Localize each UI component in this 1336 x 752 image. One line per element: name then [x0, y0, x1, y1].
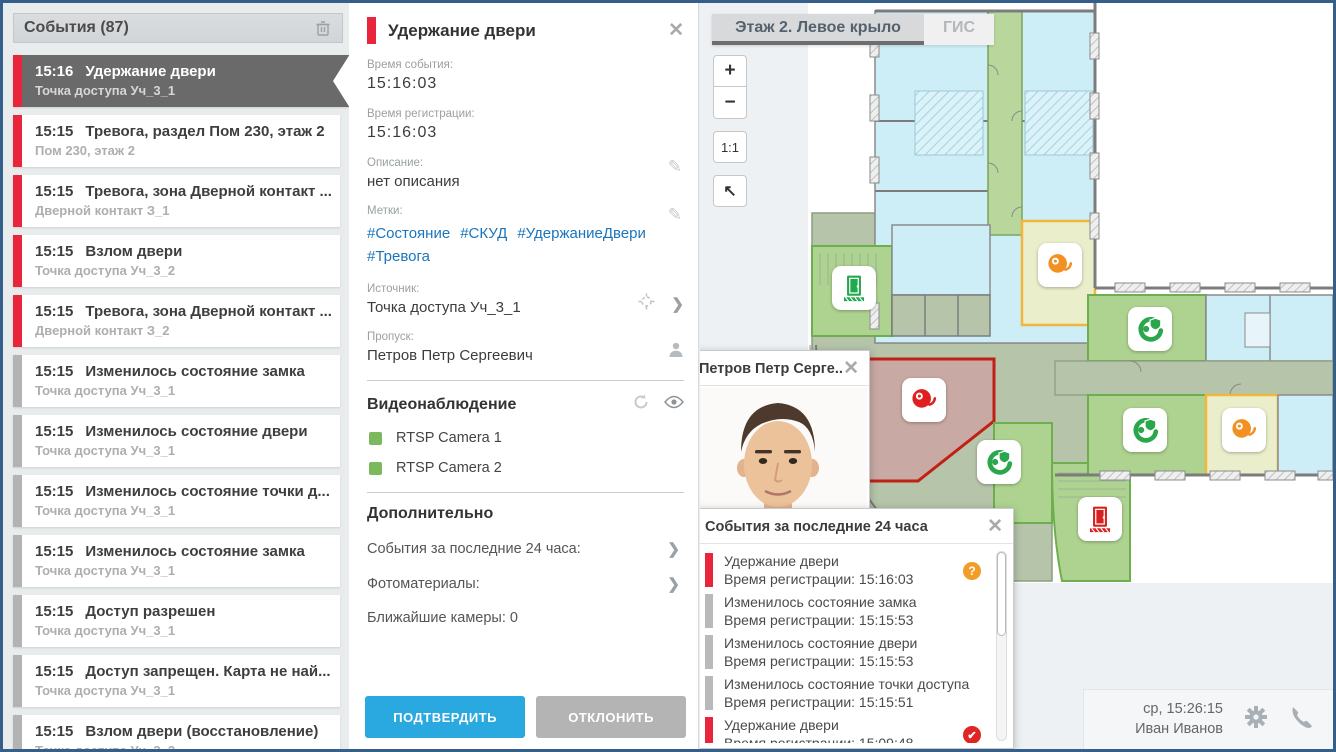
- event-title: 15:15Тревога, раздел Пом 230, этаж 2: [35, 123, 325, 140]
- reg-time-field: Время регистрации: 15:16:03: [367, 108, 684, 142]
- severity-bar: [705, 676, 713, 710]
- pass-field: Пропуск: Петров Петр Сергеевич: [367, 331, 684, 364]
- status-badge: [963, 726, 981, 743]
- tag-link[interactable]: #СКУД: [460, 223, 507, 245]
- recent-event-reg-time: Время регистрации: 15:15:51: [724, 694, 969, 710]
- recent-event-item[interactable]: Удержание двери Время регистрации: 15:09…: [705, 717, 983, 743]
- event-time: 15:15: [35, 603, 73, 620]
- extra-section-header: Дополнительно: [367, 505, 684, 523]
- event-time: 15:15: [35, 543, 73, 560]
- severity-bar: [367, 17, 376, 44]
- event-subtitle: Дверной контакт З_2: [35, 323, 332, 338]
- status-bar: ср, 15:26:15 Иван Иванов: [1083, 689, 1333, 749]
- recent-events-list: Удержание двери Время регистрации: 15:16…: [700, 544, 1013, 743]
- recent-event-item[interactable]: Изменилось состояние замка Время регистр…: [705, 594, 983, 628]
- chevron-right-icon: ❯: [667, 540, 680, 558]
- phone-icon[interactable]: [1289, 704, 1315, 735]
- event-list-item[interactable]: 15:16Удержание двери Точка доступа Уч_3_…: [13, 55, 349, 107]
- refresh-icon[interactable]: [632, 393, 650, 416]
- camera-list: RTSP Camera 1 RTSP Camera 2: [367, 430, 684, 476]
- recent-event-reg-time: Время регистрации: 15:15:53: [724, 653, 917, 669]
- alarm-bell-icon[interactable]: [1222, 408, 1266, 452]
- tab-floor-2-left-wing[interactable]: Этаж 2. Левое крыло: [712, 14, 924, 45]
- event-title: 15:15Доступ запрещен. Карта не най...: [35, 663, 331, 680]
- event-title: 15:15Взлом двери (восстановление): [35, 723, 318, 740]
- severity-bar: [705, 553, 713, 587]
- source-value: Точка доступа Уч_3_1: [367, 299, 684, 316]
- severity-bar: [13, 535, 22, 587]
- zoom-reset-button[interactable]: 1:1: [713, 131, 747, 163]
- recent-popup-title: События за последние 24 часа: [705, 519, 928, 535]
- event-list: 15:16Удержание двери Точка доступа Уч_3_…: [3, 51, 349, 749]
- event-subtitle: Точка доступа Уч_3_1: [35, 563, 305, 578]
- recent-event-title: Удержание двери: [724, 553, 913, 569]
- event-time: 15:16: [35, 63, 73, 80]
- events-panel-header: События (87): [13, 13, 343, 43]
- event-time: 15:15: [35, 243, 73, 260]
- event-list-item[interactable]: 15:15Тревога, зона Дверной контакт ... Д…: [13, 295, 340, 347]
- event-title: 15:15Изменилось состояние замка: [35, 363, 305, 380]
- extra-rows: События за последние 24 часа: ❯ Фотомате…: [367, 540, 684, 626]
- event-time: 15:15: [35, 723, 73, 740]
- tag-link[interactable]: #Состояние: [367, 223, 450, 245]
- pan-home-button[interactable]: ↖: [713, 175, 747, 207]
- detail-title: Удержание двери: [388, 21, 536, 41]
- access-point-icon[interactable]: [1128, 307, 1172, 351]
- app-window: События (87) 15:16Удержание двери Точка …: [0, 0, 1336, 752]
- event-subtitle: Точка доступа Уч_3_1: [35, 503, 330, 518]
- person-icon[interactable]: [668, 341, 684, 363]
- event-subtitle: Точка доступа Уч_3_1: [35, 683, 331, 698]
- recent-event-item[interactable]: Изменилось состояние двери Время регистр…: [705, 635, 983, 669]
- close-icon[interactable]: ✕: [987, 517, 1003, 536]
- event-title: 15:15Изменилось состояние точки д...: [35, 483, 330, 500]
- decline-button[interactable]: ОТКЛОНИТЬ: [536, 696, 686, 738]
- event-list-item[interactable]: 15:15Тревога, зона Дверной контакт ... Д…: [13, 175, 340, 227]
- extra-row[interactable]: Ближайшие камеры: 0 ❯: [367, 610, 684, 626]
- severity-bar: [13, 235, 22, 287]
- edit-pencil-icon[interactable]: ✎: [668, 157, 682, 177]
- event-list-item[interactable]: 15:15Доступ запрещен. Карта не най... То…: [13, 655, 340, 707]
- event-title: 15:15Изменилось состояние двери: [35, 423, 308, 440]
- confirm-button[interactable]: ПОДТВЕРДИТЬ: [365, 696, 525, 738]
- severity-bar: [705, 594, 713, 628]
- alarm-bell-icon[interactable]: [1038, 243, 1082, 287]
- events-panel: События (87) 15:16Удержание двери Точка …: [3, 3, 349, 749]
- tags-list: #Состояние#СКУД#УдержаниеДвери#Тревога: [367, 222, 684, 268]
- event-list-item[interactable]: 15:15Изменилось состояние двери Точка до…: [13, 415, 340, 467]
- event-list-item[interactable]: 15:15Взлом двери Точка доступа Уч_3_2: [13, 235, 340, 287]
- zoom-in-button[interactable]: +: [713, 55, 747, 87]
- recent-event-title: Изменилось состояние двери: [724, 635, 917, 651]
- chevron-right-icon[interactable]: ❯: [671, 295, 684, 313]
- event-subtitle: Точка доступа Уч_3_1: [35, 83, 216, 98]
- close-icon[interactable]: ✕: [668, 21, 684, 40]
- event-time: 15:15: [35, 483, 73, 500]
- chevron-right-icon: ❯: [667, 575, 680, 593]
- event-title: 15:15Тревога, зона Дверной контакт ...: [35, 183, 332, 200]
- severity-bar: [13, 715, 22, 749]
- recent-events-popup: События за последние 24 часа ✕ Удержание…: [700, 508, 1014, 749]
- event-time: 15:15: [35, 363, 73, 380]
- recent-event-title: Изменилось состояние замка: [724, 594, 917, 610]
- events-panel-title: События (87): [24, 19, 129, 37]
- event-subtitle: Дверной контакт З_1: [35, 203, 332, 218]
- recent-event-item[interactable]: Удержание двери Время регистрации: 15:16…: [705, 553, 983, 587]
- event-subtitle: Точка доступа Уч_3_1: [35, 383, 305, 398]
- event-time-value: 15:16:03: [367, 75, 684, 93]
- severity-bar: [13, 115, 22, 167]
- door-icon[interactable]: [1078, 497, 1122, 541]
- severity-bar: [13, 295, 22, 347]
- tab-gis[interactable]: ГИС: [924, 14, 994, 45]
- locate-crosshair-icon[interactable]: [638, 293, 655, 315]
- tag-link[interactable]: #Тревога: [367, 246, 430, 268]
- camera-row[interactable]: RTSP Camera 1: [367, 430, 684, 446]
- event-list-item[interactable]: 15:15Доступ разрешен Точка доступа Уч_3_…: [13, 595, 340, 647]
- eye-icon[interactable]: [664, 395, 684, 414]
- alarm-bell-icon[interactable]: [902, 378, 946, 422]
- severity-bar: [13, 55, 22, 107]
- edit-pencil-icon[interactable]: ✎: [668, 205, 682, 225]
- severity-bar: [13, 655, 22, 707]
- event-time: 15:15: [35, 183, 73, 200]
- status-badge: [963, 562, 981, 580]
- divider: [367, 492, 684, 493]
- access-point-icon[interactable]: [977, 440, 1021, 484]
- zoom-out-button[interactable]: −: [713, 87, 747, 119]
- severity-bar: [13, 415, 22, 467]
- event-list-item[interactable]: 15:15Изменилось состояние замка Точка до…: [13, 535, 340, 587]
- event-title: 15:15Взлом двери: [35, 243, 182, 260]
- event-subtitle: Точка доступа Уч_3_1: [35, 443, 308, 458]
- event-subtitle: Точка доступа Уч_3_2: [35, 263, 182, 278]
- severity-bar: [13, 475, 22, 527]
- event-subtitle: Точка доступа Уч_3_2: [35, 743, 318, 749]
- event-time-field: Время события: 15:16:03: [367, 59, 684, 93]
- event-detail-panel: Удержание двери ✕ Время события: 15:16:0…: [349, 3, 699, 749]
- recent-event-reg-time: Время регистрации: 15:09:48: [724, 735, 913, 743]
- event-time: 15:15: [35, 423, 73, 440]
- close-icon[interactable]: ✕: [843, 359, 859, 378]
- camera-status-square: [369, 432, 382, 445]
- event-title: 15:15Изменилось состояние замка: [35, 543, 305, 560]
- settings-gear-icon[interactable]: [1243, 704, 1269, 735]
- event-title: 15:15Тревога, зона Дверной контакт ...: [35, 303, 332, 320]
- severity-bar: [705, 717, 713, 743]
- event-list-item[interactable]: 15:15Взлом двери (восстановление) Точка …: [13, 715, 340, 749]
- extra-row[interactable]: События за последние 24 часа: ❯: [367, 540, 684, 558]
- source-field: Источник: Точка доступа Уч_3_1 ❯: [367, 283, 684, 316]
- status-user: Иван Иванов: [1135, 720, 1223, 740]
- description-value: нет описания: [367, 173, 684, 190]
- event-subtitle: Пом 230, этаж 2: [35, 143, 325, 158]
- extra-row[interactable]: Фотоматериалы: ❯: [367, 575, 684, 593]
- access-point-icon[interactable]: [1123, 408, 1167, 452]
- tag-link[interactable]: #УдержаниеДвери: [517, 223, 646, 245]
- event-list-item[interactable]: 15:15Изменилось состояние точки д... Точ…: [13, 475, 340, 527]
- person-popup-title: Петров Петр Серге...: [700, 361, 843, 377]
- divider: [367, 380, 684, 381]
- map-panel: Этаж 2. Левое крыло ГИС + − 1:1 ↖: [700, 3, 1333, 749]
- event-subtitle: Точка доступа Уч_3_1: [35, 623, 215, 638]
- tags-field: Метки: ✎ #Состояние#СКУД#УдержаниеДвери#…: [367, 205, 684, 268]
- video-section-header: Видеонаблюдение: [367, 393, 684, 416]
- trash-icon[interactable]: [314, 19, 332, 37]
- door-icon[interactable]: [832, 266, 876, 310]
- severity-bar: [13, 595, 22, 647]
- event-title: 15:16Удержание двери: [35, 63, 216, 80]
- event-list-item[interactable]: 15:15Изменилось состояние замка Точка до…: [13, 355, 340, 407]
- map-tabs: Этаж 2. Левое крыло ГИС: [712, 14, 994, 45]
- status-clock: ср, 15:26:15: [1135, 700, 1223, 720]
- map-zoom-controls: + − 1:1 ↖: [713, 55, 747, 207]
- description-field: Описание: ✎ нет описания: [367, 157, 684, 190]
- event-list-item[interactable]: 15:15Тревога, раздел Пом 230, этаж 2 Пом…: [13, 115, 340, 167]
- reg-time-value: 15:16:03: [367, 124, 684, 142]
- recent-event-reg-time: Время регистрации: 15:15:53: [724, 612, 917, 628]
- scrollbar-thumb[interactable]: [997, 552, 1006, 636]
- event-title: 15:15Доступ разрешен: [35, 603, 215, 620]
- camera-status-square: [369, 462, 382, 475]
- event-time: 15:15: [35, 303, 73, 320]
- scrollbar-track[interactable]: [996, 551, 1007, 741]
- severity-bar: [705, 635, 713, 669]
- recent-event-title: Удержание двери: [724, 717, 913, 733]
- pass-value: Петров Петр Сергеевич: [367, 347, 684, 364]
- severity-bar: [13, 175, 22, 227]
- event-time: 15:15: [35, 123, 73, 140]
- camera-row[interactable]: RTSP Camera 2: [367, 460, 684, 476]
- event-time: 15:15: [35, 663, 73, 680]
- recent-event-reg-time: Время регистрации: 15:16:03: [724, 571, 913, 587]
- recent-event-title: Изменилось состояние точки доступа: [724, 676, 969, 692]
- recent-event-item[interactable]: Изменилось состояние точки доступа Время…: [705, 676, 983, 710]
- severity-bar: [13, 355, 22, 407]
